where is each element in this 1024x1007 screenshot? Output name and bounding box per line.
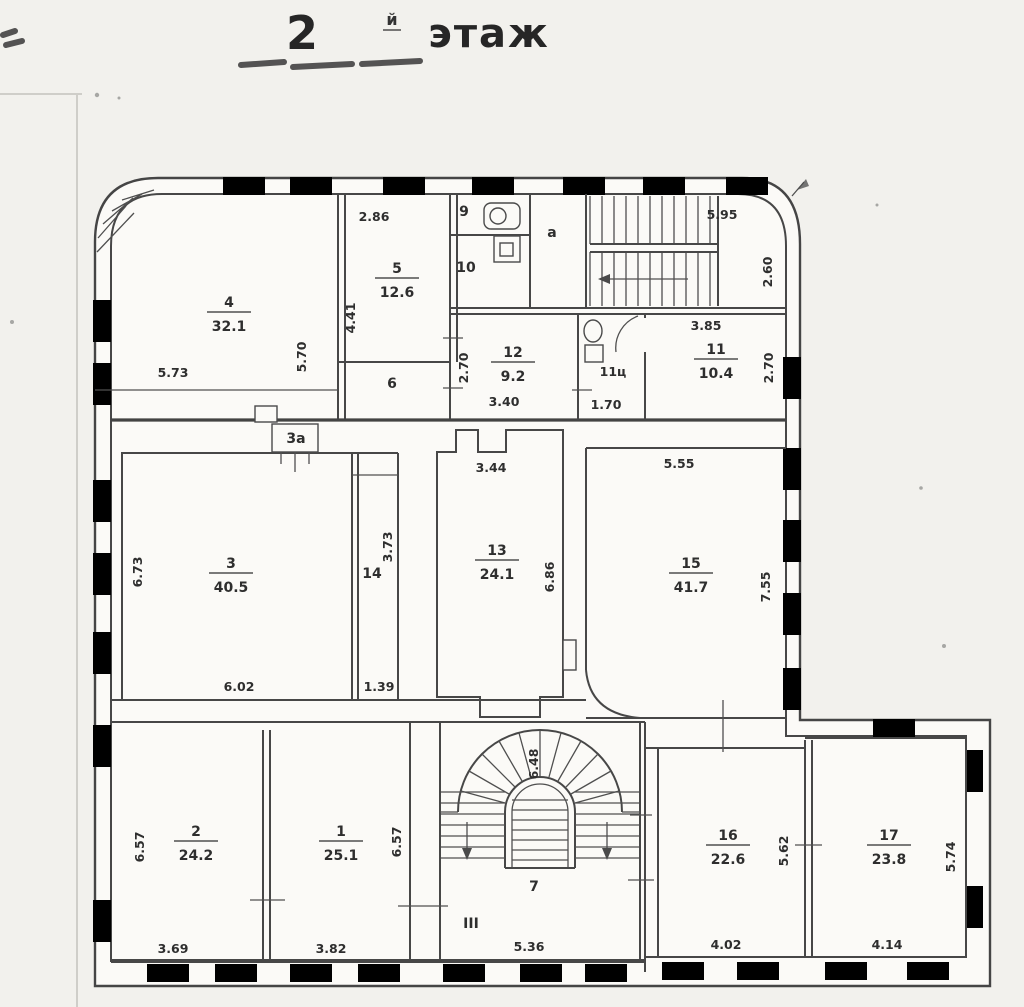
- dimension: 5.73: [158, 365, 189, 380]
- room-number: 9: [459, 204, 469, 220]
- room-number: 16: [718, 828, 737, 844]
- room-letter: 11ц: [600, 364, 627, 379]
- dimension: 3.40: [489, 394, 520, 409]
- room-number: 13: [487, 543, 506, 559]
- window: [93, 480, 111, 522]
- window: [93, 553, 111, 595]
- room-area: 32.1: [212, 319, 247, 335]
- dimension: 3.73: [380, 532, 395, 563]
- room-area: 10.4: [699, 366, 734, 382]
- window: [223, 177, 265, 195]
- window: [965, 750, 983, 792]
- window: [93, 725, 111, 767]
- window: [662, 962, 704, 980]
- floor-suffix: й: [386, 10, 397, 29]
- dimension: 2.70: [456, 352, 471, 383]
- dimension: 1.70: [591, 397, 622, 412]
- dimension: 5.62: [776, 836, 791, 867]
- window: [290, 964, 332, 982]
- dimension: 3.82: [316, 941, 347, 956]
- dimension: 3.44: [476, 460, 507, 475]
- window: [383, 177, 425, 195]
- sink-basin-icon: [500, 243, 513, 256]
- window: [93, 363, 111, 405]
- room-number: 3: [226, 556, 236, 572]
- window: [358, 964, 400, 982]
- window: [783, 520, 801, 562]
- window: [783, 593, 801, 635]
- room-area: 25.1: [324, 848, 359, 864]
- window: [585, 964, 627, 982]
- room-number: 17: [879, 828, 898, 844]
- dimension: 2.70: [761, 352, 776, 383]
- toilet-bowl-icon: [490, 208, 506, 224]
- dimension: 6.57: [132, 832, 147, 863]
- dimension: 2.60: [760, 256, 775, 287]
- room-area: 24.1: [480, 567, 515, 583]
- room-area: 12.6: [380, 285, 415, 301]
- dimension: 7.55: [758, 572, 773, 603]
- dimension: 5.95: [707, 207, 738, 222]
- dimension: 5.55: [664, 456, 695, 471]
- room-area: 40.5: [214, 580, 249, 596]
- window: [825, 962, 867, 980]
- window: [147, 964, 189, 982]
- room-number: 10: [456, 260, 476, 276]
- window: [737, 962, 779, 980]
- dimension: 6.02: [224, 679, 255, 694]
- room-number: 7: [529, 879, 539, 895]
- window: [215, 964, 257, 982]
- window: [93, 632, 111, 674]
- dimension: 5.74: [943, 841, 958, 872]
- room-number: 15: [681, 556, 700, 572]
- dimension: 4.14: [872, 937, 903, 952]
- window: [290, 177, 332, 195]
- window: [520, 964, 562, 982]
- dimension: 3.69: [158, 941, 189, 956]
- room-number: 11: [706, 342, 725, 358]
- window: [873, 719, 915, 737]
- room-letter: 3а: [286, 431, 305, 447]
- window: [93, 300, 111, 342]
- dimension: 3.85: [691, 318, 722, 333]
- room-area: 41.7: [674, 580, 709, 596]
- floor-word: этаж: [428, 11, 550, 57]
- room-area: 24.2: [179, 848, 214, 864]
- dimension: 5.70: [294, 341, 309, 372]
- dimension: 6.73: [130, 557, 145, 588]
- room-area: 9.2: [501, 369, 526, 385]
- window: [783, 448, 801, 490]
- sink-icon: [585, 345, 603, 362]
- room-number: 6: [387, 376, 397, 392]
- window: [443, 964, 485, 982]
- dimension: 5.36: [514, 939, 545, 954]
- dimension: 6.86: [542, 561, 557, 592]
- window: [907, 962, 949, 980]
- dimension: 6.48: [526, 749, 541, 780]
- window: [93, 900, 111, 942]
- dimension: 4.02: [711, 937, 742, 952]
- room-number: 14: [362, 566, 382, 582]
- room-letter: а: [547, 225, 556, 241]
- window: [783, 668, 801, 710]
- window: [472, 177, 514, 195]
- title-block: 2 й этаж: [241, 6, 550, 67]
- room-number: 12: [503, 345, 522, 361]
- toilet-icon: [584, 320, 602, 342]
- dimension: 1.39: [364, 679, 395, 694]
- dimension: 6.57: [389, 827, 404, 858]
- window: [783, 357, 801, 399]
- scanned-floor-plan-page: 2 й этаж: [0, 0, 1024, 1007]
- floor-number: 2: [286, 6, 318, 60]
- window: [726, 177, 768, 195]
- room-number: 1: [336, 824, 346, 840]
- entrance-marker: III: [463, 916, 479, 932]
- window: [643, 177, 685, 195]
- window: [563, 177, 605, 195]
- window: [965, 886, 983, 928]
- room-area: 23.8: [872, 852, 907, 868]
- floor-plan-drawing: 2 й этаж: [0, 0, 1024, 1007]
- dimension: 4.41: [343, 303, 358, 334]
- room-area: 22.6: [711, 852, 746, 868]
- room-number: 4: [224, 295, 234, 311]
- dimension: 2.86: [359, 209, 390, 224]
- room-number: 2: [191, 824, 201, 840]
- room-number: 5: [392, 261, 402, 277]
